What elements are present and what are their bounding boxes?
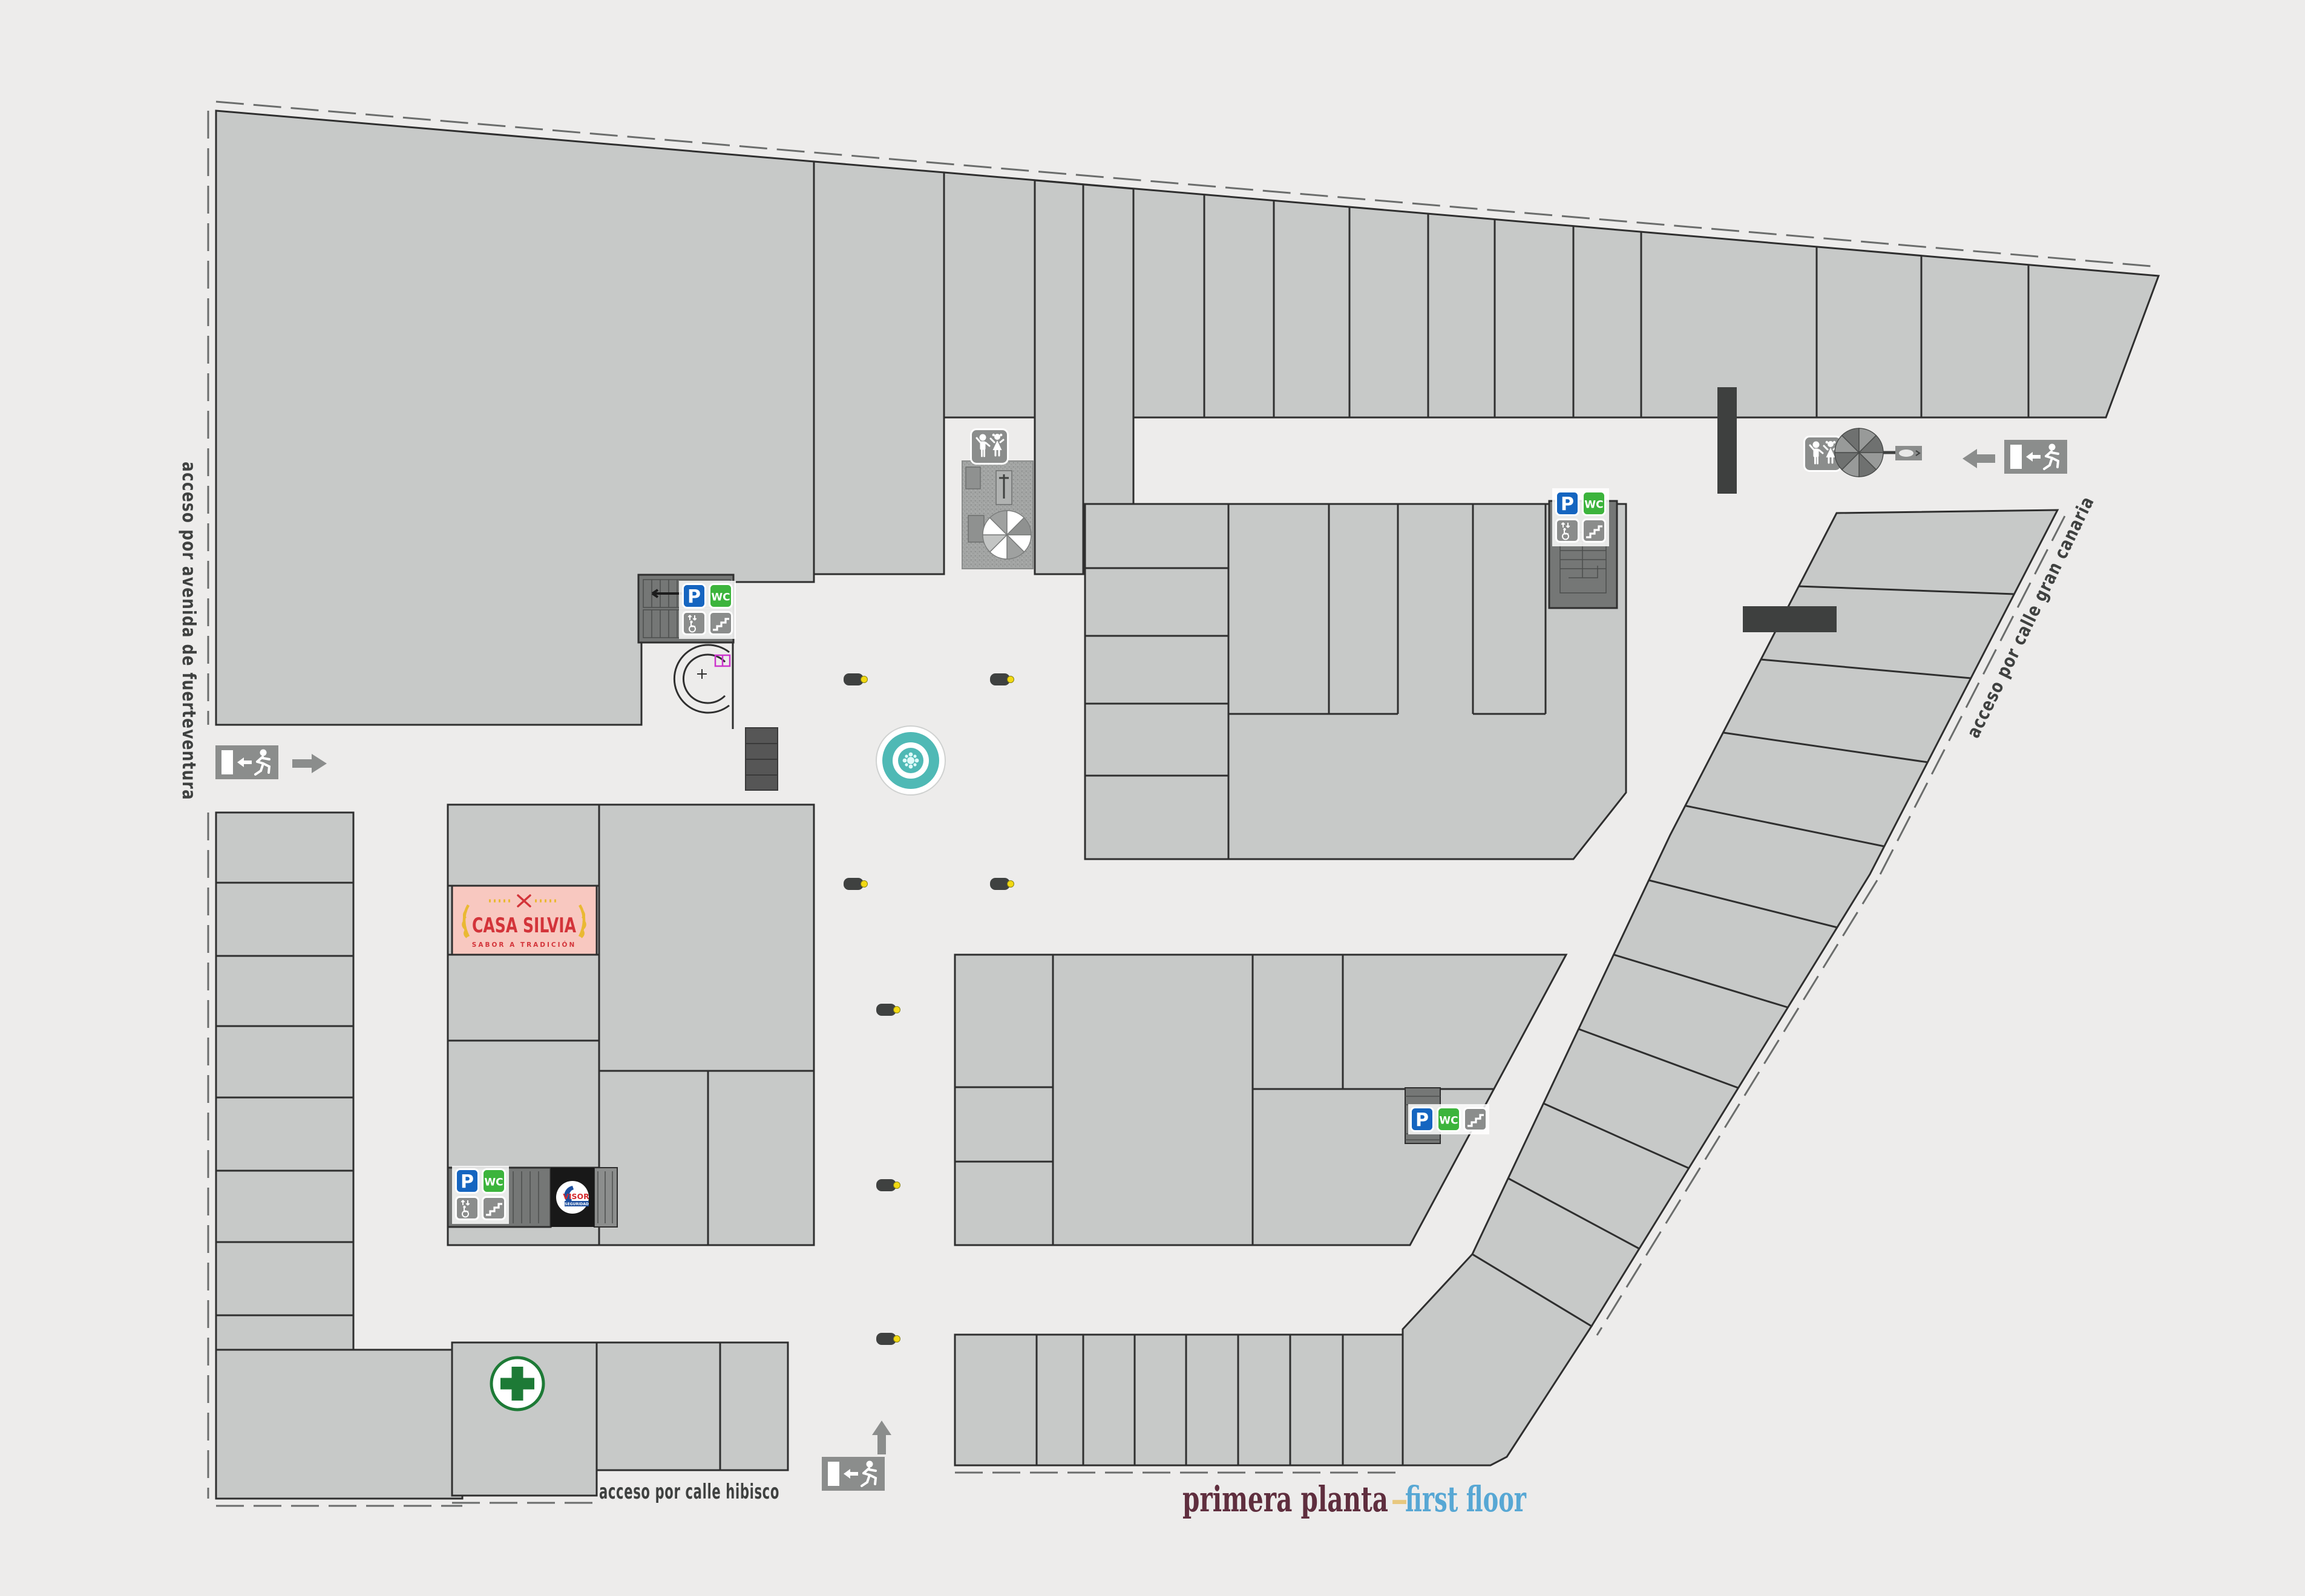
- exit-sign-northeast: [2004, 440, 2067, 474]
- pharmacy-sign: [491, 1358, 543, 1410]
- exit-sign-south: [822, 1457, 885, 1491]
- play-area-parasol: [983, 511, 1031, 559]
- access-label-south: acceso por calle hibisco: [599, 1480, 779, 1504]
- floor-title-primary: primera planta: [1182, 1479, 1388, 1520]
- store-southwest: [216, 1350, 462, 1499]
- visor-logo-name: VISOR: [563, 1192, 589, 1201]
- visor-security-kiosk: VISOR SEGURIDAD: [551, 1168, 594, 1227]
- floor-title: primera planta – first floor: [1182, 1479, 1527, 1520]
- fountain: [876, 726, 945, 795]
- floor-title-secondary: first floor: [1405, 1479, 1527, 1520]
- amenity-cluster-northwest: [679, 581, 736, 639]
- play-rider: [968, 515, 984, 542]
- kids-area-sign-north: [971, 430, 1008, 464]
- access-label-west: acceso por avenida de fuerteventura: [178, 462, 199, 800]
- store-tall-a: [814, 162, 944, 574]
- store-south-b: [720, 1343, 788, 1470]
- service-corridor-top: [1717, 387, 1737, 494]
- visor-logo-subtitle: SEGURIDAD: [565, 1202, 589, 1206]
- amenity-cluster-southwest: [452, 1166, 509, 1224]
- store-row-south: [955, 1335, 1403, 1465]
- casa-silvia-name: CASA SILVIA: [472, 914, 576, 938]
- store-south-a: [597, 1343, 720, 1470]
- service-bridge-east: [1743, 606, 1837, 632]
- amenity-cluster-southeast: [1408, 1104, 1489, 1134]
- casa-silvia-tagline: SABOR A TRADICIÓN: [472, 941, 576, 949]
- exit-sign-west: [215, 745, 278, 779]
- mall-floor-plan: P WC: [0, 0, 2305, 1596]
- amenity-cluster-northeast: [1552, 488, 1609, 546]
- store-column-west: [216, 813, 353, 1350]
- lounger: [1895, 446, 1922, 460]
- play-panel: [966, 467, 980, 489]
- escalator-block: [746, 728, 778, 790]
- casa-silvia-sign: CASA SILVIA SABOR A TRADICIÓN: [452, 886, 597, 955]
